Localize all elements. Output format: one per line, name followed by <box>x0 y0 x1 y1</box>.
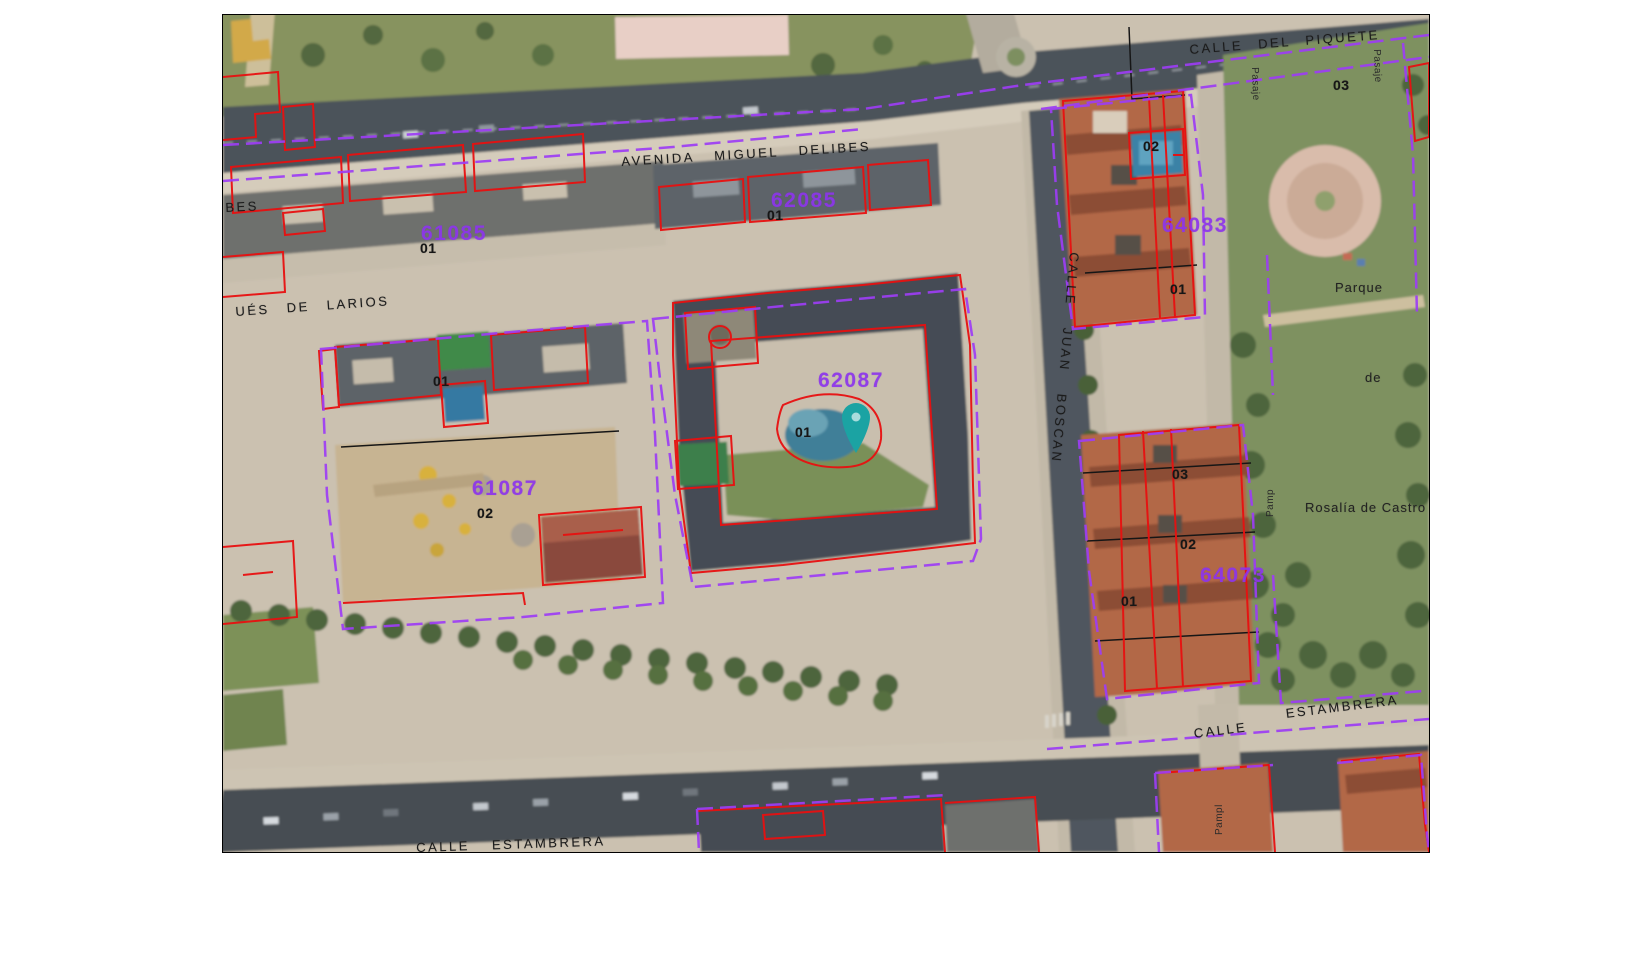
page: { "app": { "type": "cadastral-map-viewer… <box>0 0 1652 955</box>
location-pin-marker[interactable] <box>836 401 876 453</box>
aerial-imagery-layer <box>223 15 1429 852</box>
aerial-map-canvas <box>223 15 1429 852</box>
location-pin-icon <box>842 403 870 453</box>
location-pin-hole <box>852 413 861 422</box>
map-viewport[interactable]: CALLE DEL PIQUETEAVENIDA MIGUEL DELIBESB… <box>222 14 1430 853</box>
